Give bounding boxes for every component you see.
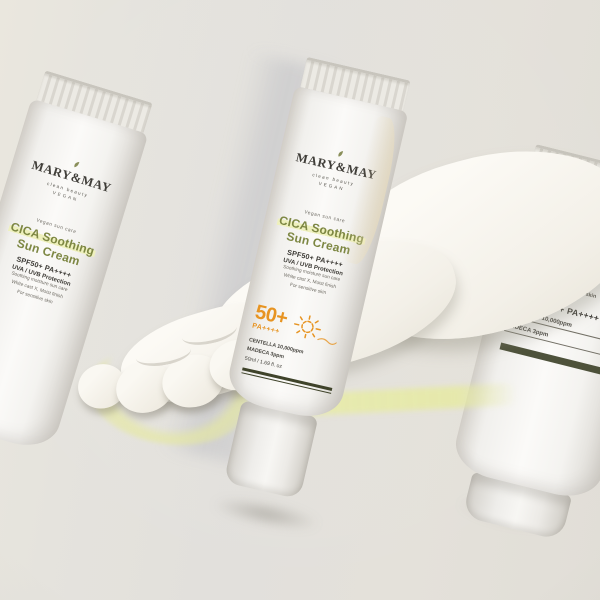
leaf-icon <box>70 159 80 169</box>
brand-block: MARY&MAY clean beauty vegan <box>25 148 116 211</box>
product-photo-stage: MARY&MAY clean beauty vegan Vegan sun ca… <box>0 0 600 600</box>
spf-badge-block: 50+ PA++++ CENTELLA 10,000ppm <box>241 303 347 394</box>
brand-block: MARY&MAY clean beauty vegan <box>291 140 380 198</box>
product-name-block: Vegan sun care CICA Soothing Sun Cream S… <box>263 205 370 304</box>
leaf-icon <box>334 149 344 159</box>
spf-value-column: 50+ PA++++ <box>252 303 290 337</box>
